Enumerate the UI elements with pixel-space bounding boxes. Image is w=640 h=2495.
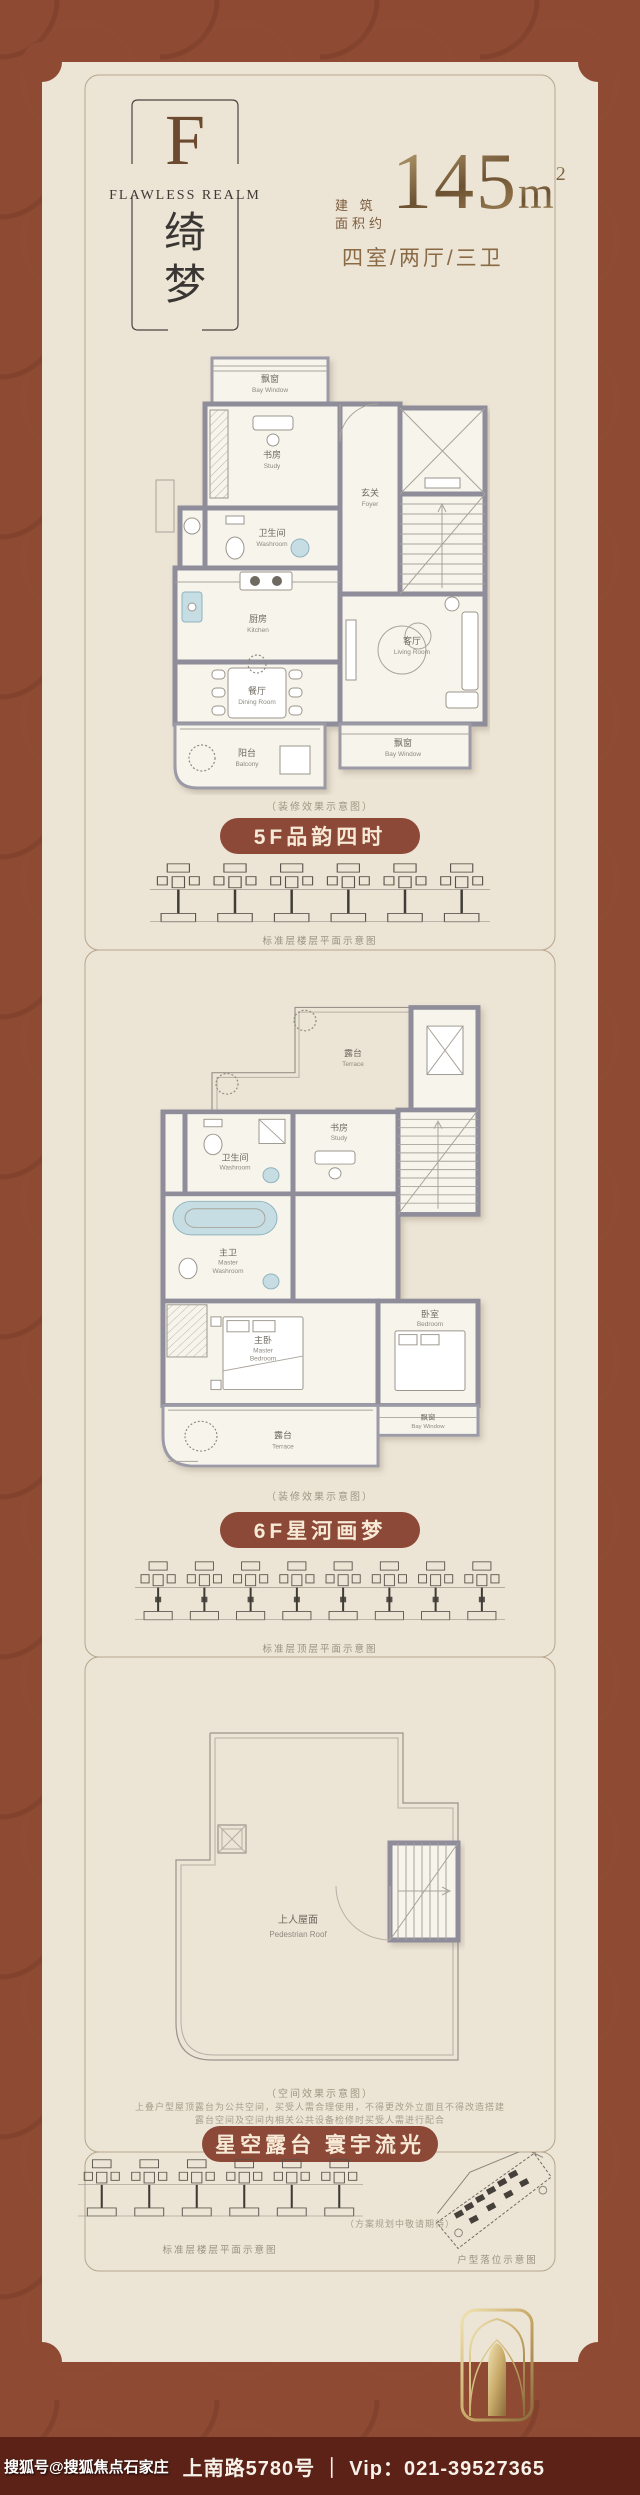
- brand-emblem-icon: [458, 2306, 536, 2424]
- brand-block: F FLAWLESS REALM 绮 梦: [120, 88, 250, 338]
- siteplan-caption: 户型落位示意图: [430, 2252, 565, 2266]
- brand-name-en: FLAWLESS REALM: [65, 188, 305, 204]
- svg-text:Terrace: Terrace: [272, 1443, 294, 1450]
- svg-text:主卧: 主卧: [254, 1334, 272, 1345]
- svg-text:Study: Study: [331, 1135, 348, 1142]
- svg-text:Pedestrian Roof: Pedestrian Roof: [269, 1930, 327, 1939]
- svg-text:飘窗: 飘窗: [394, 737, 412, 748]
- footer-bar: 搜狐号@搜狐焦点石家庄 上南路5780号 ｜ Vip：021-39527365: [0, 2437, 640, 2495]
- watermark-text: 搜狐号@搜狐焦点石家庄: [4, 2456, 169, 2477]
- monogram-letter: F: [120, 104, 250, 176]
- svg-text:Terrace: Terrace: [342, 1061, 364, 1068]
- siteplan-sketch: [430, 2152, 565, 2250]
- area-block: 建 筑 面积约 145m2 四室/两厅/三卫: [330, 138, 580, 278]
- svg-text:Bedroom: Bedroom: [417, 1321, 443, 1328]
- terrace-rail-6f: [212, 1007, 411, 1111]
- poster: F FLAWLESS REALM 绮 梦 建 筑 面积约 145m2 四室/两厅…: [0, 0, 640, 2495]
- svg-text:露台: 露台: [344, 1047, 362, 1058]
- svg-text:Washroom: Washroom: [219, 1165, 250, 1172]
- area-unit: m: [518, 167, 556, 218]
- corner-notch: [22, 2342, 62, 2382]
- svg-text:Washroom: Washroom: [256, 541, 287, 548]
- svg-text:Kitchen: Kitchen: [247, 627, 269, 634]
- roofplan: 上人屋面 Pedestrian Roof: [148, 1725, 508, 2075]
- svg-text:卫生间: 卫生间: [222, 1152, 249, 1163]
- floorplan-6f: 露台Terrace 卫生间Washroom 书房Study 主卫MasterWa…: [143, 1000, 498, 1480]
- badge-roof: 星空露台 寰宇流光: [202, 2126, 438, 2162]
- brand-name-cn-1: 绮: [120, 210, 250, 260]
- svg-text:卫生间: 卫生间: [258, 527, 285, 538]
- svg-text:书房: 书房: [330, 1122, 348, 1133]
- render-caption-roof: （空间效果示意图）: [170, 2085, 470, 2100]
- svg-text:飘窗: 飘窗: [261, 373, 279, 384]
- footer-contact-text: 上南路5780号 ｜ Vip：021-39527365: [183, 2452, 545, 2481]
- svg-text:Balcony: Balcony: [235, 761, 259, 768]
- render-caption-5f: （装修效果示意图）: [170, 798, 470, 813]
- area-prefix-line2: 面积约: [335, 216, 386, 233]
- svg-text:客厅: 客厅: [403, 635, 421, 646]
- svg-text:玄关: 玄关: [361, 487, 379, 498]
- svg-text:露台: 露台: [274, 1429, 292, 1440]
- svg-text:主卫: 主卫: [219, 1247, 237, 1258]
- corner-notch: [22, 42, 62, 82]
- keyplan-caption-6f: 标准层顶层平面示意图: [170, 1641, 470, 1655]
- walls-6f: [163, 1007, 478, 1466]
- svg-text:Bay Window: Bay Window: [385, 751, 421, 758]
- badge-5f: 5F品韵四时: [220, 818, 420, 854]
- svg-text:Bay Window: Bay Window: [252, 387, 288, 394]
- area-prefix-line1: 建 筑: [335, 198, 377, 215]
- svg-text:Master: Master: [253, 1347, 273, 1354]
- svg-text:Bay Window: Bay Window: [411, 1424, 445, 1430]
- svg-text:飘窗: 飘窗: [421, 1413, 436, 1422]
- svg-text:Washroom: Washroom: [212, 1268, 243, 1275]
- area-exponent: 2: [556, 163, 568, 185]
- svg-text:餐厅: 餐厅: [248, 685, 266, 696]
- svg-text:Dining Room: Dining Room: [238, 699, 276, 706]
- svg-text:Bedroom: Bedroom: [250, 1356, 276, 1363]
- svg-text:书房: 书房: [263, 449, 281, 460]
- room-layout-text: 四室/两厅/三卫: [342, 242, 504, 272]
- floorplan-5f: 飘窗Bay Window 书房Study 玄关Foyer 卫生间Washroom…: [150, 350, 490, 795]
- keyplan-strip-bottom: [78, 2158, 363, 2224]
- area-value: 145: [392, 138, 518, 226]
- keyplan-strip-6f: [135, 1560, 505, 1628]
- svg-text:Study: Study: [264, 463, 281, 470]
- corner-notch: [578, 2342, 618, 2382]
- svg-text:Master: Master: [218, 1260, 238, 1267]
- roof-note-1: 上叠户型屋顶露台为公共空间，买受人需合理使用，不得更改外立面且不得改造搭建: [90, 2101, 550, 2114]
- badge-6f: 6F星河画梦: [220, 1512, 420, 1548]
- keyplan-strip-5f: [150, 862, 490, 930]
- corner-notch: [578, 42, 618, 82]
- svg-text:厨房: 厨房: [249, 613, 267, 624]
- brand-name-cn-2: 梦: [120, 262, 250, 312]
- area-value-group: 145m2: [392, 146, 568, 218]
- keyplan-caption-5f: 标准层楼层平面示意图: [170, 933, 470, 947]
- svg-text:卧室: 卧室: [421, 1308, 439, 1319]
- svg-text:上人屋面: 上人屋面: [278, 1914, 318, 1926]
- svg-text:Foyer: Foyer: [362, 501, 379, 508]
- keyplan-caption-bottom: 标准层楼层平面示意图: [120, 2242, 320, 2256]
- roof-labels: 上人屋面 Pedestrian Roof: [269, 1914, 327, 1939]
- render-caption-6f: （装修效果示意图）: [170, 1488, 470, 1503]
- svg-text:阳台: 阳台: [238, 747, 256, 758]
- svg-text:Living Room: Living Room: [394, 649, 430, 656]
